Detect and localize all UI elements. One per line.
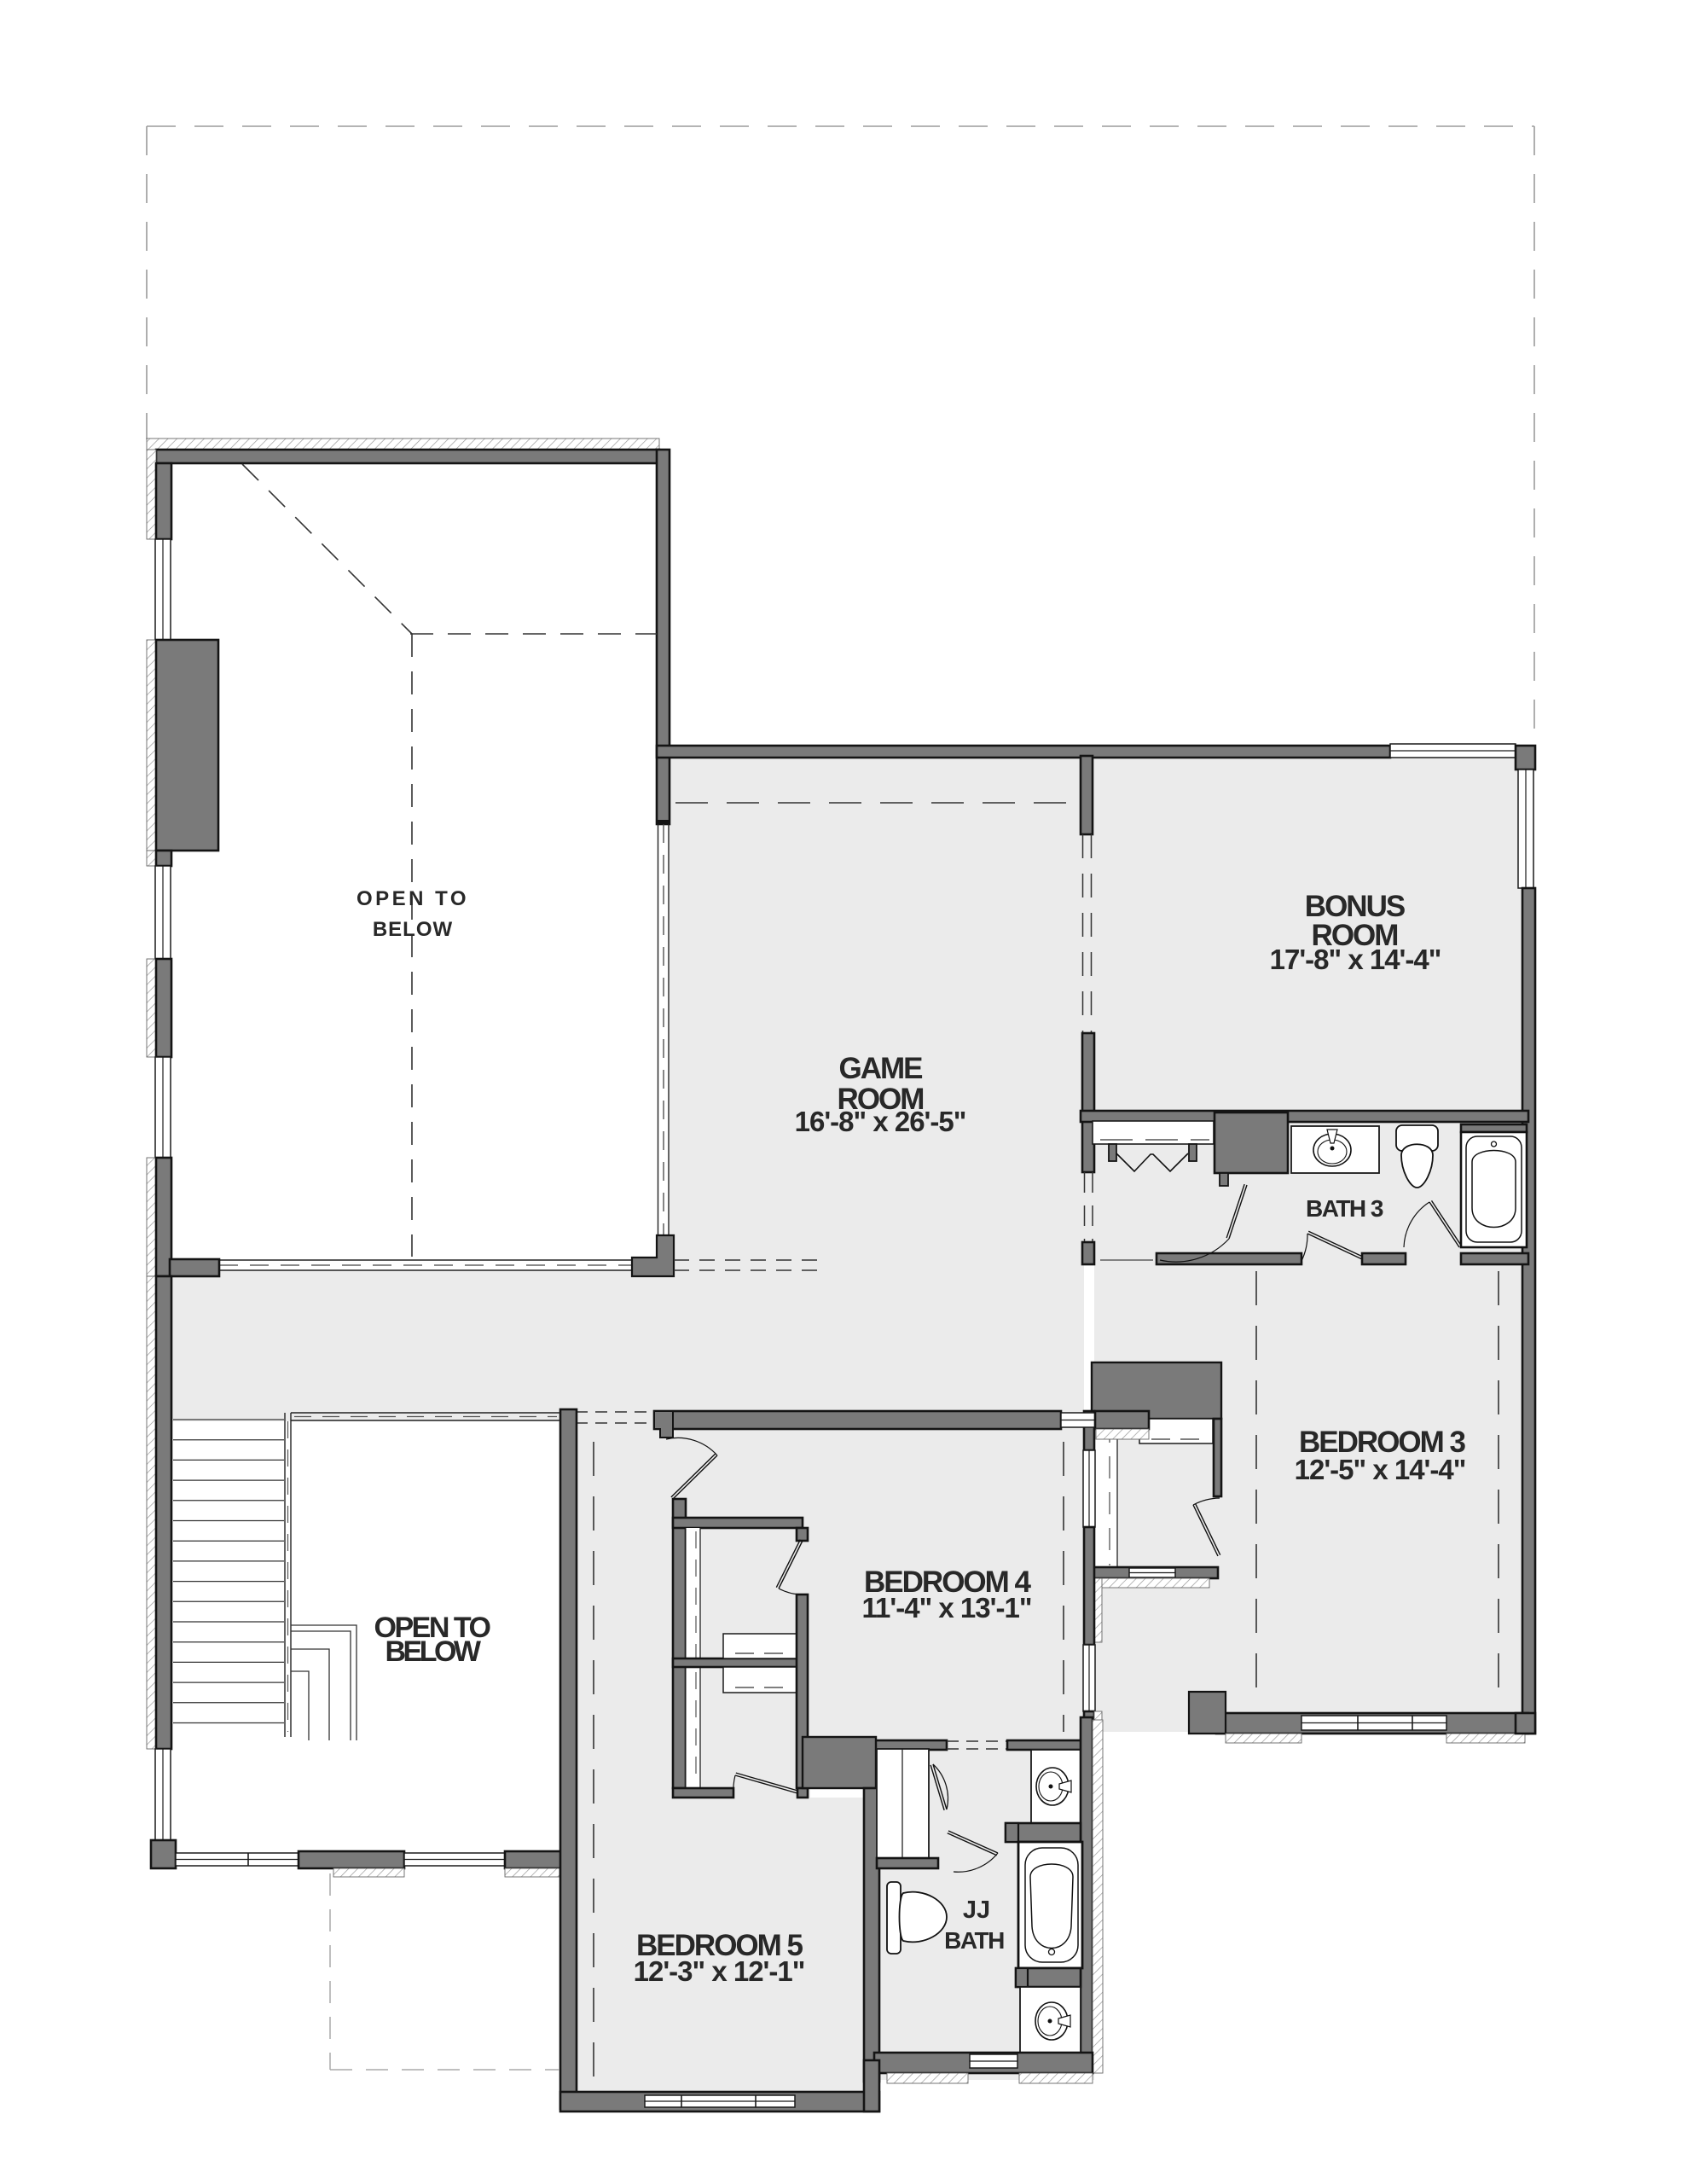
svg-text:GAME: GAME <box>839 1052 923 1085</box>
svg-text:16'-8" x 26'-5": 16'-8" x 26'-5" <box>795 1106 966 1137</box>
svg-text:JJ: JJ <box>963 1896 990 1924</box>
svg-text:BATH: BATH <box>944 1927 1004 1954</box>
svg-text:OPEN TO: OPEN TO <box>357 887 469 910</box>
svg-text:12'-5" x 14'-4": 12'-5" x 14'-4" <box>1295 1454 1466 1485</box>
svg-text:12'-3" x 12'-1": 12'-3" x 12'-1" <box>634 1955 805 1987</box>
svg-text:BATH 3: BATH 3 <box>1306 1195 1383 1222</box>
svg-text:BELOW: BELOW <box>385 1635 481 1668</box>
svg-text:17'-8" x 14'-4": 17'-8" x 14'-4" <box>1270 944 1441 975</box>
svg-text:11'-4" x 13'-1": 11'-4" x 13'-1" <box>862 1592 1032 1623</box>
svg-text:BELOW: BELOW <box>373 918 453 941</box>
